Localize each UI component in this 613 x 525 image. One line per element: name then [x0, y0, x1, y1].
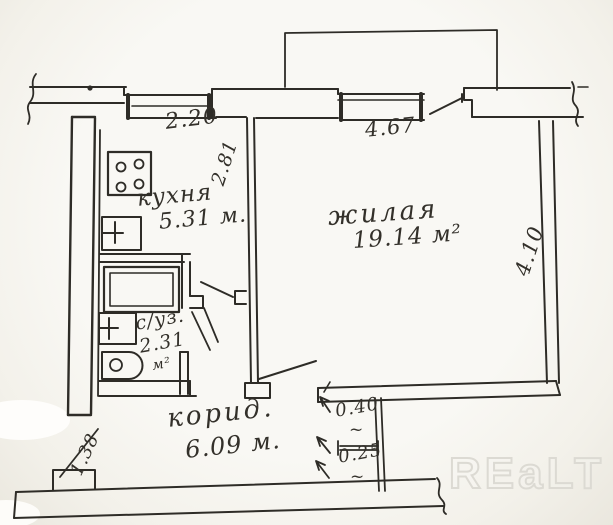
balcony-door-leaf	[430, 98, 462, 114]
balcony-door	[430, 94, 462, 114]
outer-wall-top-right	[464, 82, 588, 126]
outer-wall-top-middle	[212, 89, 338, 118]
ink-blob	[87, 85, 92, 90]
outer-wall-left	[68, 117, 100, 415]
inner-wall-left-face	[98, 130, 100, 396]
scan-blotches	[0, 400, 70, 525]
toilet-icon	[102, 352, 143, 379]
washbasin-icon	[99, 313, 136, 344]
dim-gap-upper-tilde: ~	[349, 422, 364, 439]
door-catch-bracket	[235, 291, 246, 304]
living-door-leaf	[259, 361, 316, 379]
leader-arrow-upper	[320, 397, 330, 412]
leader-arrow-lower	[316, 461, 329, 478]
bathroom-door-jamb	[190, 296, 203, 308]
divider-wall-kitchen-living	[235, 118, 270, 398]
wall-break-squiggle-bottom	[437, 478, 446, 514]
kitchen-sink-icon	[102, 217, 141, 250]
balcony-outline	[285, 30, 497, 90]
floor-plan-scan: кухня 5.31 м. жилая 19.14 м² с/уз. 2.31 …	[0, 0, 613, 525]
bathroom-area-unit: м²	[151, 356, 172, 373]
dim-gap-lower-tilde: ~	[350, 469, 365, 486]
bathtub-icon	[104, 267, 179, 312]
bathroom-door-swing-2	[204, 308, 218, 342]
dim-living-window: 4.67	[364, 115, 417, 141]
outer-wall-bottom	[14, 470, 446, 518]
realt-watermark: REaLT	[449, 452, 605, 496]
wall-break-squiggle-right	[572, 82, 578, 126]
outer-wall-right	[539, 121, 559, 383]
bathroom-door-leaf	[201, 282, 233, 297]
leader-arrow-middle	[317, 437, 330, 453]
wall-break-squiggle-left	[28, 74, 36, 124]
